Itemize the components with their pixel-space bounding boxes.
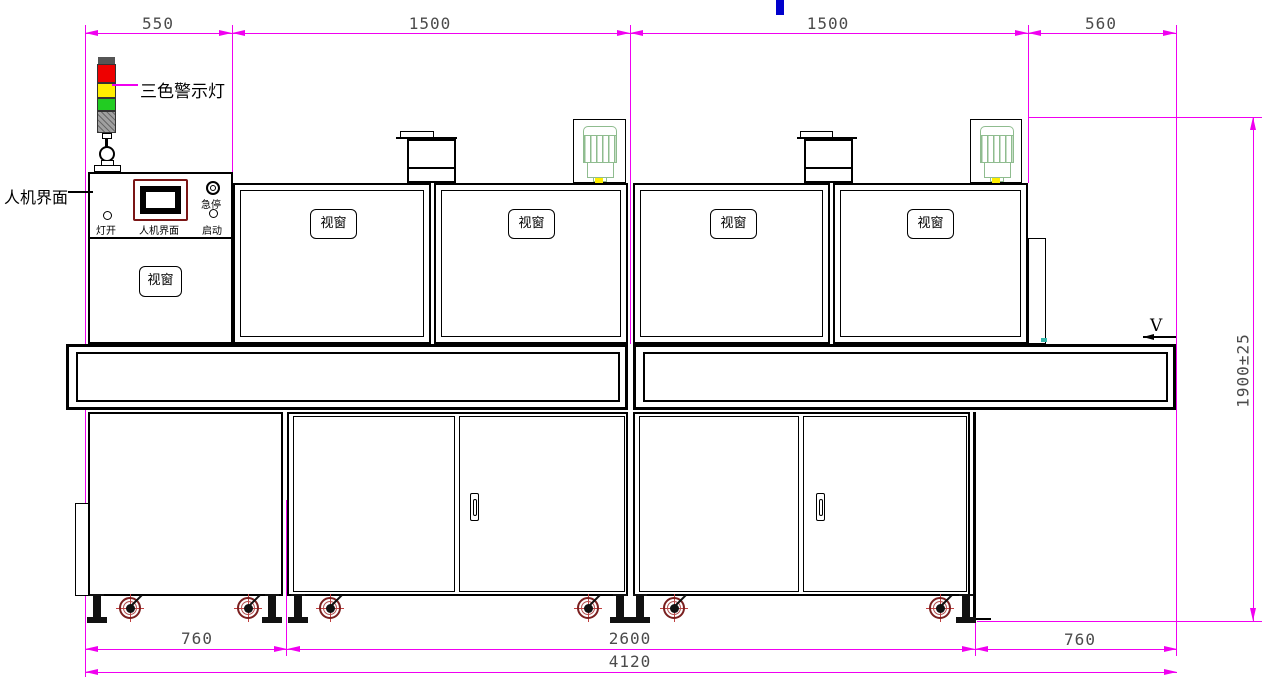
caster-wheel bbox=[237, 597, 259, 619]
cabinet-mid-right-door-2[interactable] bbox=[803, 416, 967, 592]
caster-wheel bbox=[929, 597, 951, 619]
caster-wheel bbox=[119, 597, 141, 619]
dim-1500-right: 1500 bbox=[788, 14, 868, 33]
arrow bbox=[1250, 117, 1256, 130]
arrow bbox=[1015, 30, 1028, 36]
leveling-foot bbox=[610, 594, 630, 623]
hmi-panel-label: 人机界面 bbox=[139, 222, 179, 237]
fan-motor-right-body bbox=[984, 162, 1011, 178]
dim-line-height bbox=[1253, 117, 1254, 621]
ext-line-right bbox=[1176, 25, 1177, 656]
caster-wheel bbox=[577, 597, 599, 619]
hmi-screen[interactable] bbox=[140, 186, 181, 214]
hmi-callout: 人机界面 bbox=[4, 184, 68, 208]
machine-front-view-drawing: 550 1500 1500 560 760 2600 760 4120 1900… bbox=[0, 0, 1262, 683]
tower-light-green bbox=[97, 98, 116, 111]
fan-motor-left-indicator bbox=[595, 178, 603, 183]
arrow bbox=[1028, 30, 1041, 36]
dim-2600: 2600 bbox=[590, 629, 670, 648]
start-button[interactable] bbox=[209, 209, 218, 218]
arrow bbox=[85, 646, 98, 652]
exhaust-duct-right-seam bbox=[806, 167, 851, 169]
leveling-foot bbox=[87, 594, 107, 623]
window-label-head: 视窗 bbox=[139, 266, 182, 297]
fan-motor-right-fins bbox=[980, 135, 1014, 163]
ext-line-1028 bbox=[1028, 25, 1029, 183]
conveyor-right-inner bbox=[643, 352, 1168, 402]
base-right-support bbox=[973, 412, 976, 620]
tower-light-cap bbox=[98, 57, 115, 64]
arrow bbox=[274, 646, 287, 652]
arrow bbox=[962, 646, 975, 652]
arrow bbox=[85, 30, 98, 36]
control-head-divider bbox=[88, 237, 233, 239]
fan-motor-right-indicator bbox=[992, 178, 1000, 183]
exhaust-duct-right bbox=[804, 139, 853, 183]
dim-height-1900: 1900±25 bbox=[1234, 301, 1253, 441]
window-label-3: 视窗 bbox=[710, 209, 757, 239]
arrow bbox=[219, 30, 232, 36]
dim-560: 560 bbox=[1061, 14, 1141, 33]
leveling-foot bbox=[288, 594, 308, 623]
blue-marker bbox=[776, 0, 784, 15]
arrow bbox=[1163, 30, 1176, 36]
dim-line-bottom2 bbox=[85, 672, 1177, 673]
tower-light-base bbox=[97, 111, 116, 133]
leveling-foot bbox=[630, 594, 650, 623]
view-marker-arrow bbox=[1143, 334, 1154, 340]
leveling-foot bbox=[262, 594, 282, 623]
base-frame-left-step bbox=[75, 503, 89, 596]
ext-line-center bbox=[630, 25, 631, 344]
window-label-1: 视窗 bbox=[310, 209, 357, 239]
arrow bbox=[1164, 669, 1177, 675]
caster-wheel bbox=[319, 597, 341, 619]
door-handle-left-grip bbox=[473, 499, 477, 516]
light-on-label: 灯开 bbox=[96, 222, 116, 237]
exhaust-duct-left-seam bbox=[409, 167, 454, 169]
dim-760-left: 760 bbox=[157, 629, 237, 648]
fan-motor-left-body bbox=[587, 162, 614, 178]
arrow bbox=[232, 30, 245, 36]
cabinet-mid-left-door-1[interactable] bbox=[293, 416, 455, 592]
arrow bbox=[287, 646, 300, 652]
hmi-leader-line bbox=[68, 191, 93, 193]
dim-550: 550 bbox=[118, 14, 198, 33]
cabinet-mid-left-door-2[interactable] bbox=[459, 416, 625, 592]
tunnel-end-panel bbox=[1028, 238, 1046, 344]
arrow bbox=[85, 669, 98, 675]
dim-760-right: 760 bbox=[1040, 630, 1120, 649]
tower-light-mount-plate bbox=[94, 165, 121, 172]
caster-wheel bbox=[663, 597, 685, 619]
view-marker-label: V bbox=[1150, 316, 1162, 336]
cabinet-mid-right-door-1[interactable] bbox=[639, 416, 799, 592]
arrow bbox=[1164, 646, 1177, 652]
window-label-4: 视窗 bbox=[907, 209, 954, 239]
tower-light-leader-line bbox=[112, 84, 138, 86]
conveyor-left-inner bbox=[76, 352, 620, 402]
start-label: 启动 bbox=[202, 222, 222, 237]
tower-light-red bbox=[97, 64, 116, 83]
top-ref-line bbox=[1028, 117, 1262, 118]
light-on-button[interactable] bbox=[103, 211, 112, 220]
floor-ref-line bbox=[977, 621, 1262, 622]
arrow bbox=[975, 646, 988, 652]
arrow bbox=[630, 30, 643, 36]
estop-button-inner bbox=[210, 185, 216, 191]
teal-mark bbox=[1041, 338, 1047, 342]
exhaust-duct-left bbox=[407, 139, 456, 183]
fan-motor-left-fins bbox=[583, 135, 617, 163]
base-frame-left bbox=[88, 412, 283, 596]
door-handle-right-grip bbox=[819, 499, 823, 516]
arrow bbox=[1250, 608, 1256, 621]
dim-line-bottom1 bbox=[85, 649, 1177, 650]
window-label-2: 视窗 bbox=[508, 209, 555, 239]
dim-4120: 4120 bbox=[590, 652, 670, 671]
ext-line-550 bbox=[232, 25, 233, 183]
dim-1500-left: 1500 bbox=[390, 14, 470, 33]
leveling-foot bbox=[956, 594, 976, 623]
arrow bbox=[617, 30, 630, 36]
tower-light-callout: 三色警示灯 bbox=[140, 77, 225, 102]
